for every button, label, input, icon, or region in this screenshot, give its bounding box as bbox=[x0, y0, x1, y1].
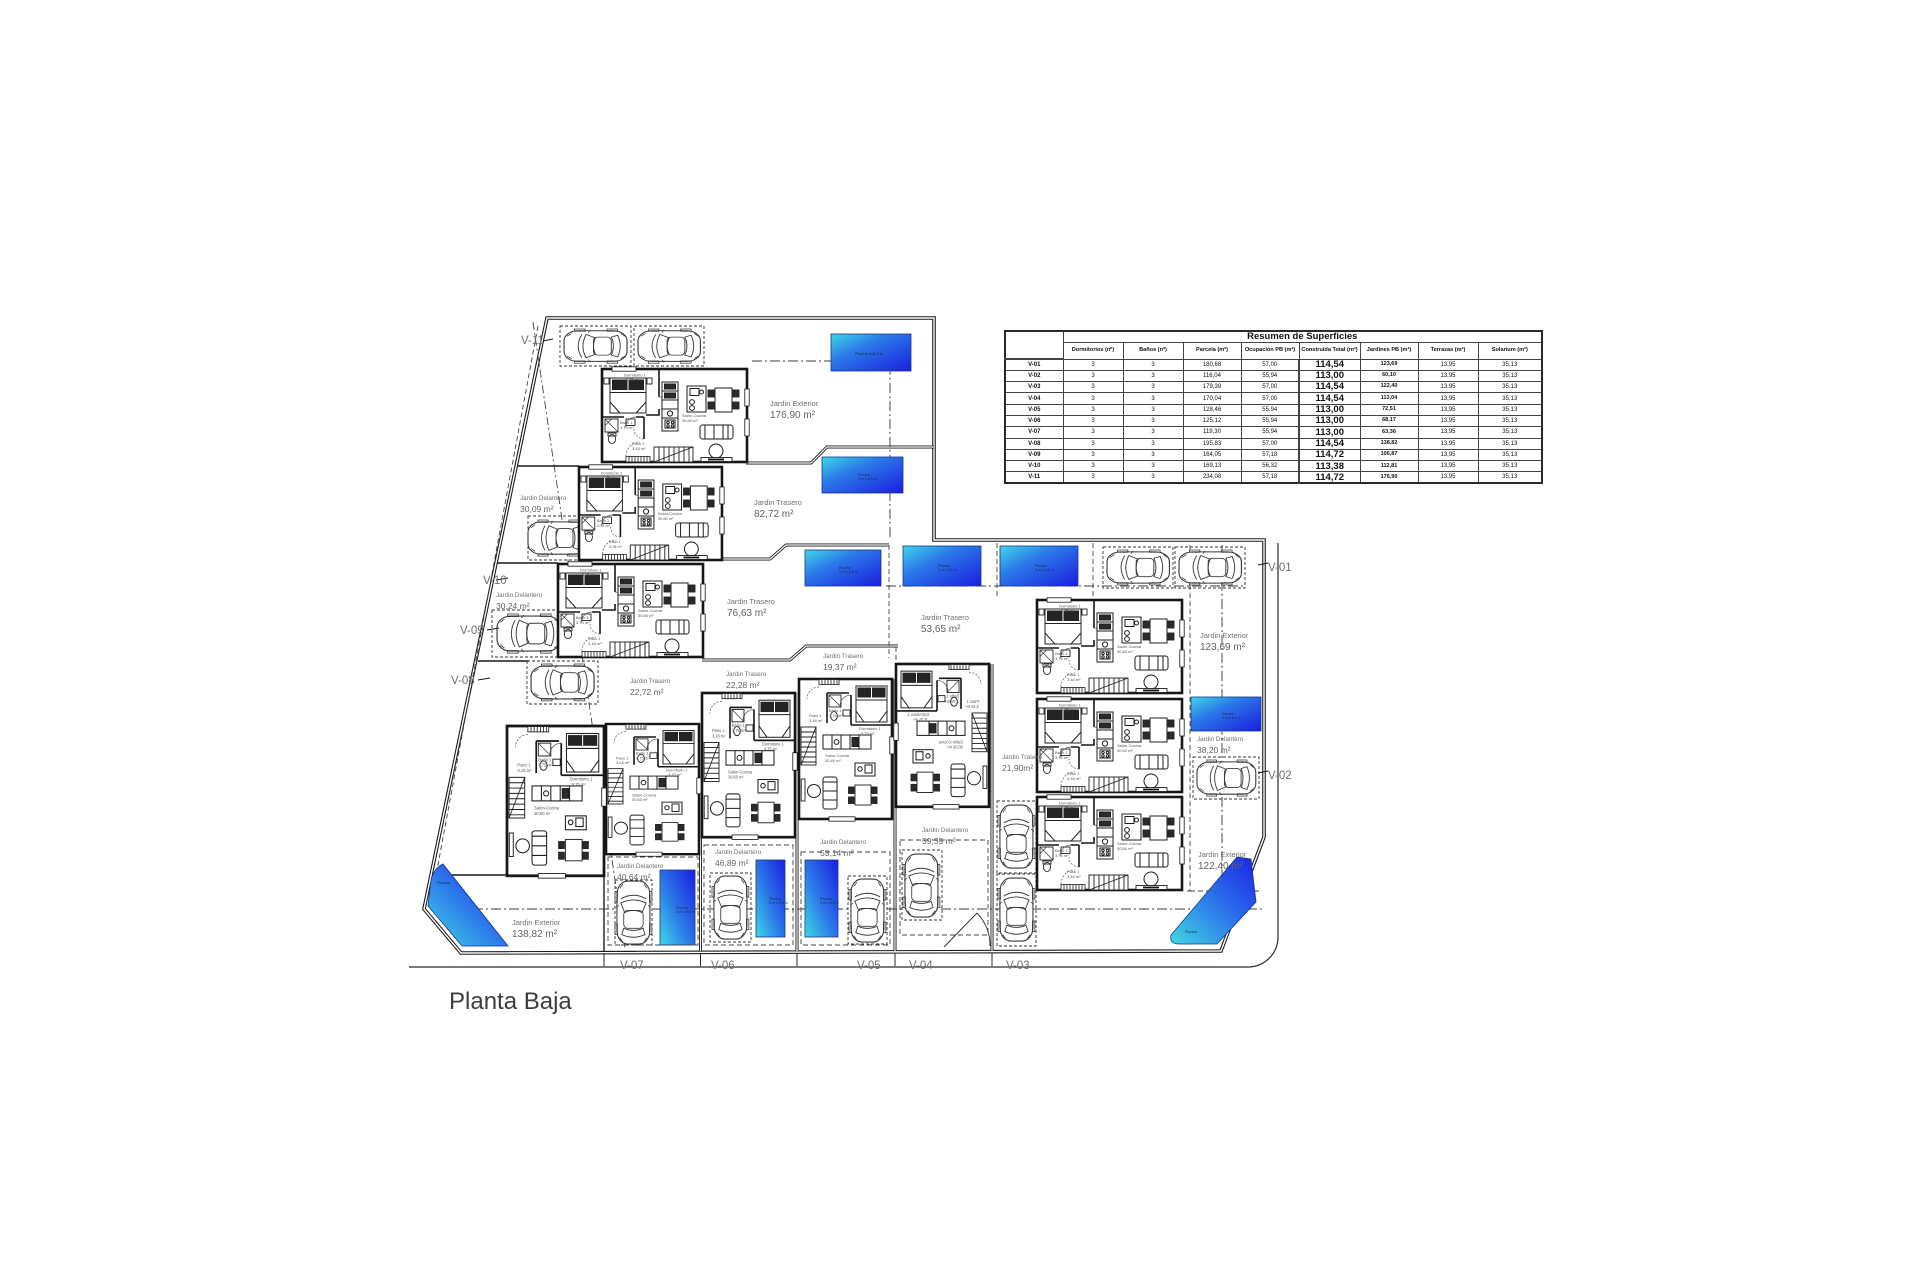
svg-text:40,64 m²: 40,64 m² bbox=[617, 872, 651, 882]
svg-text:22,72 m²: 22,72 m² bbox=[630, 687, 664, 697]
svg-text:Piscina 3x6,5 m: Piscina 3x6,5 m bbox=[855, 351, 884, 356]
svg-text:Jardin Delantero: Jardin Delantero bbox=[496, 592, 543, 599]
svg-text:19,37 m²: 19,37 m² bbox=[823, 662, 857, 672]
svg-text:21,90m²: 21,90m² bbox=[1002, 763, 1033, 773]
svg-text:3 m x 6,5 m: 3 m x 6,5 m bbox=[858, 477, 877, 481]
svg-text:V-07: V-07 bbox=[620, 960, 644, 972]
svg-text:V-03: V-03 bbox=[1006, 960, 1030, 972]
svg-text:82,72 m²: 82,72 m² bbox=[754, 509, 794, 520]
svg-text:22,28 m²: 22,28 m² bbox=[726, 680, 760, 690]
svg-text:V-10: V-10 bbox=[483, 575, 507, 587]
svg-text:38,20 m²: 38,20 m² bbox=[1197, 745, 1231, 755]
svg-text:V-02: V-02 bbox=[1268, 770, 1292, 782]
svg-text:3 m x 6,5 m: 3 m x 6,5 m bbox=[1222, 716, 1241, 720]
svg-text:53,65 m²: 53,65 m² bbox=[921, 624, 961, 635]
svg-text:76,63 m²: 76,63 m² bbox=[727, 608, 767, 619]
svg-text:Jardin Exterior: Jardin Exterior bbox=[770, 399, 819, 408]
svg-text:Jardin Delantero: Jardin Delantero bbox=[520, 495, 567, 502]
svg-text:Jardin Trasero: Jardin Trasero bbox=[823, 653, 864, 660]
svg-text:3 m x 6,5 m: 3 m x 6,5 m bbox=[839, 570, 858, 574]
svg-text:Jardin Trasero: Jardin Trasero bbox=[727, 597, 775, 606]
svg-text:123,69 m²: 123,69 m² bbox=[1200, 642, 1246, 653]
svg-text:138,82 m²: 138,82 m² bbox=[512, 929, 558, 940]
svg-text:176,90 m²: 176,90 m² bbox=[770, 410, 816, 421]
svg-text:Jardin Exterior: Jardin Exterior bbox=[1200, 631, 1249, 640]
svg-text:Piscina: Piscina bbox=[437, 880, 451, 885]
svg-text:Jardin Delantero: Jardin Delantero bbox=[820, 839, 867, 846]
svg-text:Piscina: Piscina bbox=[1185, 930, 1197, 934]
svg-text:V-05: V-05 bbox=[857, 960, 881, 972]
svg-text:53,14 m²: 53,14 m² bbox=[820, 848, 854, 858]
svg-text:Jardin Trasero: Jardin Trasero bbox=[726, 671, 767, 678]
svg-text:Jardin Delantero: Jardin Delantero bbox=[922, 827, 969, 834]
svg-text:122,40 m²: 122,40 m² bbox=[1198, 861, 1244, 872]
svg-text:V-06: V-06 bbox=[711, 960, 735, 972]
svg-text:3 m x 6,5 m: 3 m x 6,5 m bbox=[676, 910, 695, 914]
svg-text:V-01: V-01 bbox=[1268, 562, 1292, 574]
svg-text:Jardin Delantero: Jardin Delantero bbox=[715, 849, 762, 856]
svg-text:V-11: V-11 bbox=[521, 335, 544, 347]
svg-text:59,39 m²: 59,39 m² bbox=[922, 836, 956, 846]
svg-text:Jardin Trasero: Jardin Trasero bbox=[1002, 754, 1043, 761]
svg-text:3 m x 6,5 m: 3 m x 6,5 m bbox=[1035, 568, 1054, 572]
svg-text:30,24 m²: 30,24 m² bbox=[496, 601, 530, 611]
svg-text:30,09 m²: 30,09 m² bbox=[520, 504, 554, 514]
svg-text:Jardin Trasero: Jardin Trasero bbox=[630, 678, 671, 685]
svg-text:3 m x 6,5 m: 3 m x 6,5 m bbox=[820, 901, 839, 905]
svg-text:V-09: V-09 bbox=[460, 625, 484, 637]
svg-text:3 m x 6,5 m: 3 m x 6,5 m bbox=[769, 901, 788, 905]
svg-text:Jardin Trasero: Jardin Trasero bbox=[921, 613, 969, 622]
svg-text:V-04: V-04 bbox=[909, 960, 933, 972]
svg-text:Jardin Delantero: Jardin Delantero bbox=[1197, 736, 1244, 743]
svg-text:Jardin Delantero: Jardin Delantero bbox=[617, 863, 664, 870]
svg-text:3 m x 6,5 m: 3 m x 6,5 m bbox=[938, 568, 957, 572]
svg-text:Jardin Exterior: Jardin Exterior bbox=[1198, 850, 1247, 859]
svg-text:46,89 m²: 46,89 m² bbox=[715, 858, 749, 868]
svg-text:Jardin Exterior: Jardin Exterior bbox=[512, 918, 561, 927]
svg-text:V-08: V-08 bbox=[451, 675, 475, 687]
svg-text:Jardin Trasero: Jardin Trasero bbox=[754, 498, 802, 507]
